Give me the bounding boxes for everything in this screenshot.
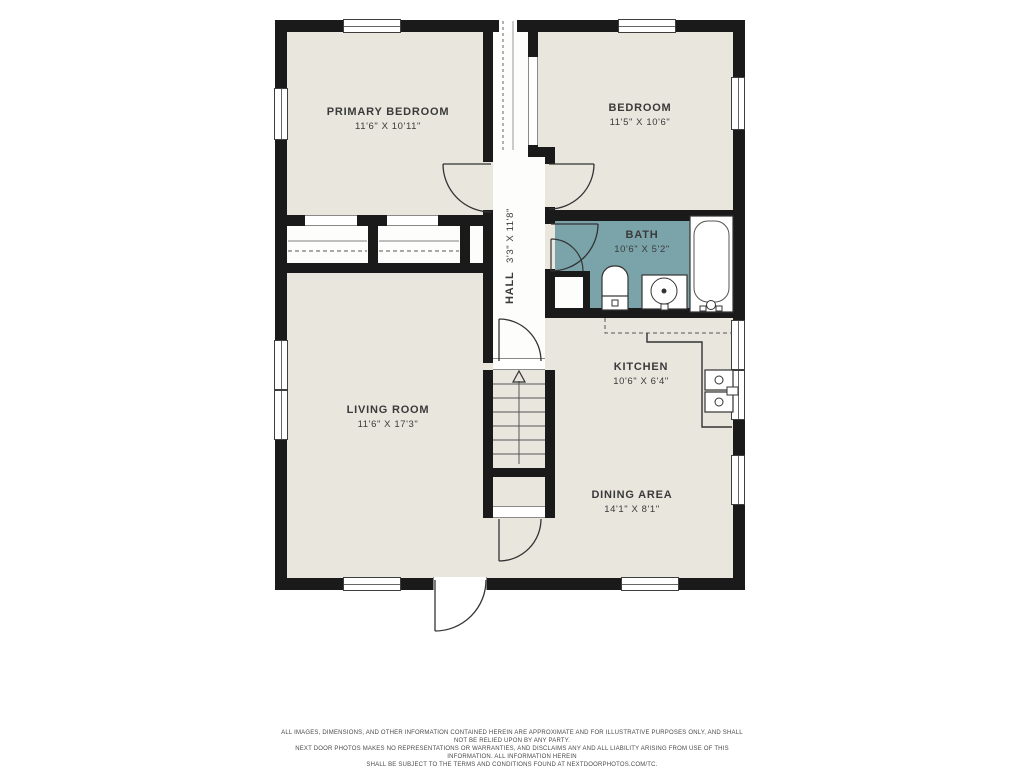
wall-stair-left-low <box>483 477 493 518</box>
wall-primary-bottom-1 <box>287 215 305 226</box>
wall-bath-closet-right <box>583 271 590 308</box>
room-dims: 11'5" X 10'6" <box>608 115 671 131</box>
wall-hall-right-stub <box>545 157 555 164</box>
wall-closet-divider <box>368 226 378 263</box>
stair-top-doorframe <box>493 358 545 370</box>
room-label-hall: HALL 3'3" X 11'8" <box>502 208 520 304</box>
room-dims: 14'1" X 8'1" <box>591 502 672 518</box>
window-top-bedroom <box>618 19 676 33</box>
chase-side-opening <box>528 57 538 145</box>
disclaimer-text: ALL IMAGES, DIMENSIONS, AND OTHER INFORM… <box>277 729 747 768</box>
disclaimer-line-2: NEXT DOOR PHOTOS MAKES NO REPRESENTATION… <box>277 745 747 761</box>
closet-right-opening <box>387 215 438 226</box>
closet-nook-floor <box>470 226 483 263</box>
wall-stair-right-low <box>545 477 555 518</box>
disclaimer-line-1: ALL IMAGES, DIMENSIONS, AND OTHER INFORM… <box>277 729 747 745</box>
disclaimer-line-3: SHALL BE SUBJECT TO THE TERMS AND CONDIT… <box>277 761 747 768</box>
room-label-primary-bedroom: PRIMARY BEDROOM 11'6" X 10'11" <box>327 106 450 135</box>
room-dims: 11'6" X 10'11" <box>327 119 450 135</box>
room-name: DINING AREA <box>591 489 672 502</box>
room-name: LIVING ROOM <box>347 404 430 417</box>
room-label-bath: BATH 10'6" X 5'2" <box>614 229 670 258</box>
room-name: BATH <box>614 229 670 242</box>
window-left-living-2 <box>274 390 288 440</box>
room-label-living-room: LIVING ROOM 11'6" X 17'3" <box>347 404 430 433</box>
wall-hall-left <box>483 210 493 363</box>
stair-bottom-doorframe <box>493 506 545 518</box>
chase-top-notch <box>499 20 517 32</box>
wall-primary-bottom-2 <box>357 215 387 226</box>
wall-bath-bottom <box>545 308 733 318</box>
window-right-kitchen-1 <box>731 320 745 370</box>
closet-left-floor <box>287 226 368 263</box>
window-bottom-dining <box>621 577 679 591</box>
wall-chase-left <box>483 32 493 162</box>
chase-floor <box>493 32 528 157</box>
window-right-dining <box>731 455 745 505</box>
room-dims: 11'6" X 17'3" <box>347 417 430 433</box>
room-dims: 3'3" X 11'8" <box>503 208 519 263</box>
window-left-living-1 <box>274 340 288 390</box>
room-name: HALL <box>504 271 517 304</box>
room-label-bedroom: BEDROOM 11'5" X 10'6" <box>608 102 671 131</box>
window-right-bedroom <box>731 77 745 130</box>
room-dims: 10'6" X 5'2" <box>614 242 670 258</box>
window-top-primary <box>343 19 401 33</box>
wall-bath-top <box>545 210 733 221</box>
front-door-opening <box>433 577 487 590</box>
wall-closet-bottom <box>287 263 493 273</box>
window-bottom-living <box>343 577 401 591</box>
wall-chase-jog <box>528 147 555 157</box>
bath-closet-floor <box>555 277 583 308</box>
window-right-kitchen-2 <box>731 370 745 420</box>
floor-plan: PRIMARY BEDROOM 11'6" X 10'11" BEDROOM 1… <box>0 0 1024 768</box>
room-label-dining-area: DINING AREA 14'1" X 8'1" <box>591 489 672 518</box>
closet-left-opening <box>305 215 357 226</box>
wall-stair-left <box>483 370 493 477</box>
wall-stair-mid <box>483 468 555 477</box>
wall-stair-right <box>545 370 555 477</box>
room-name: PRIMARY BEDROOM <box>327 106 450 119</box>
room-name: BEDROOM <box>608 102 671 115</box>
room-label-kitchen: KITCHEN 10'6" X 6'4" <box>613 361 669 390</box>
closet-right-floor <box>378 226 460 263</box>
room-name: KITCHEN <box>613 361 669 374</box>
room-dims: 10'6" X 6'4" <box>613 374 669 390</box>
window-left-primary <box>274 88 288 140</box>
